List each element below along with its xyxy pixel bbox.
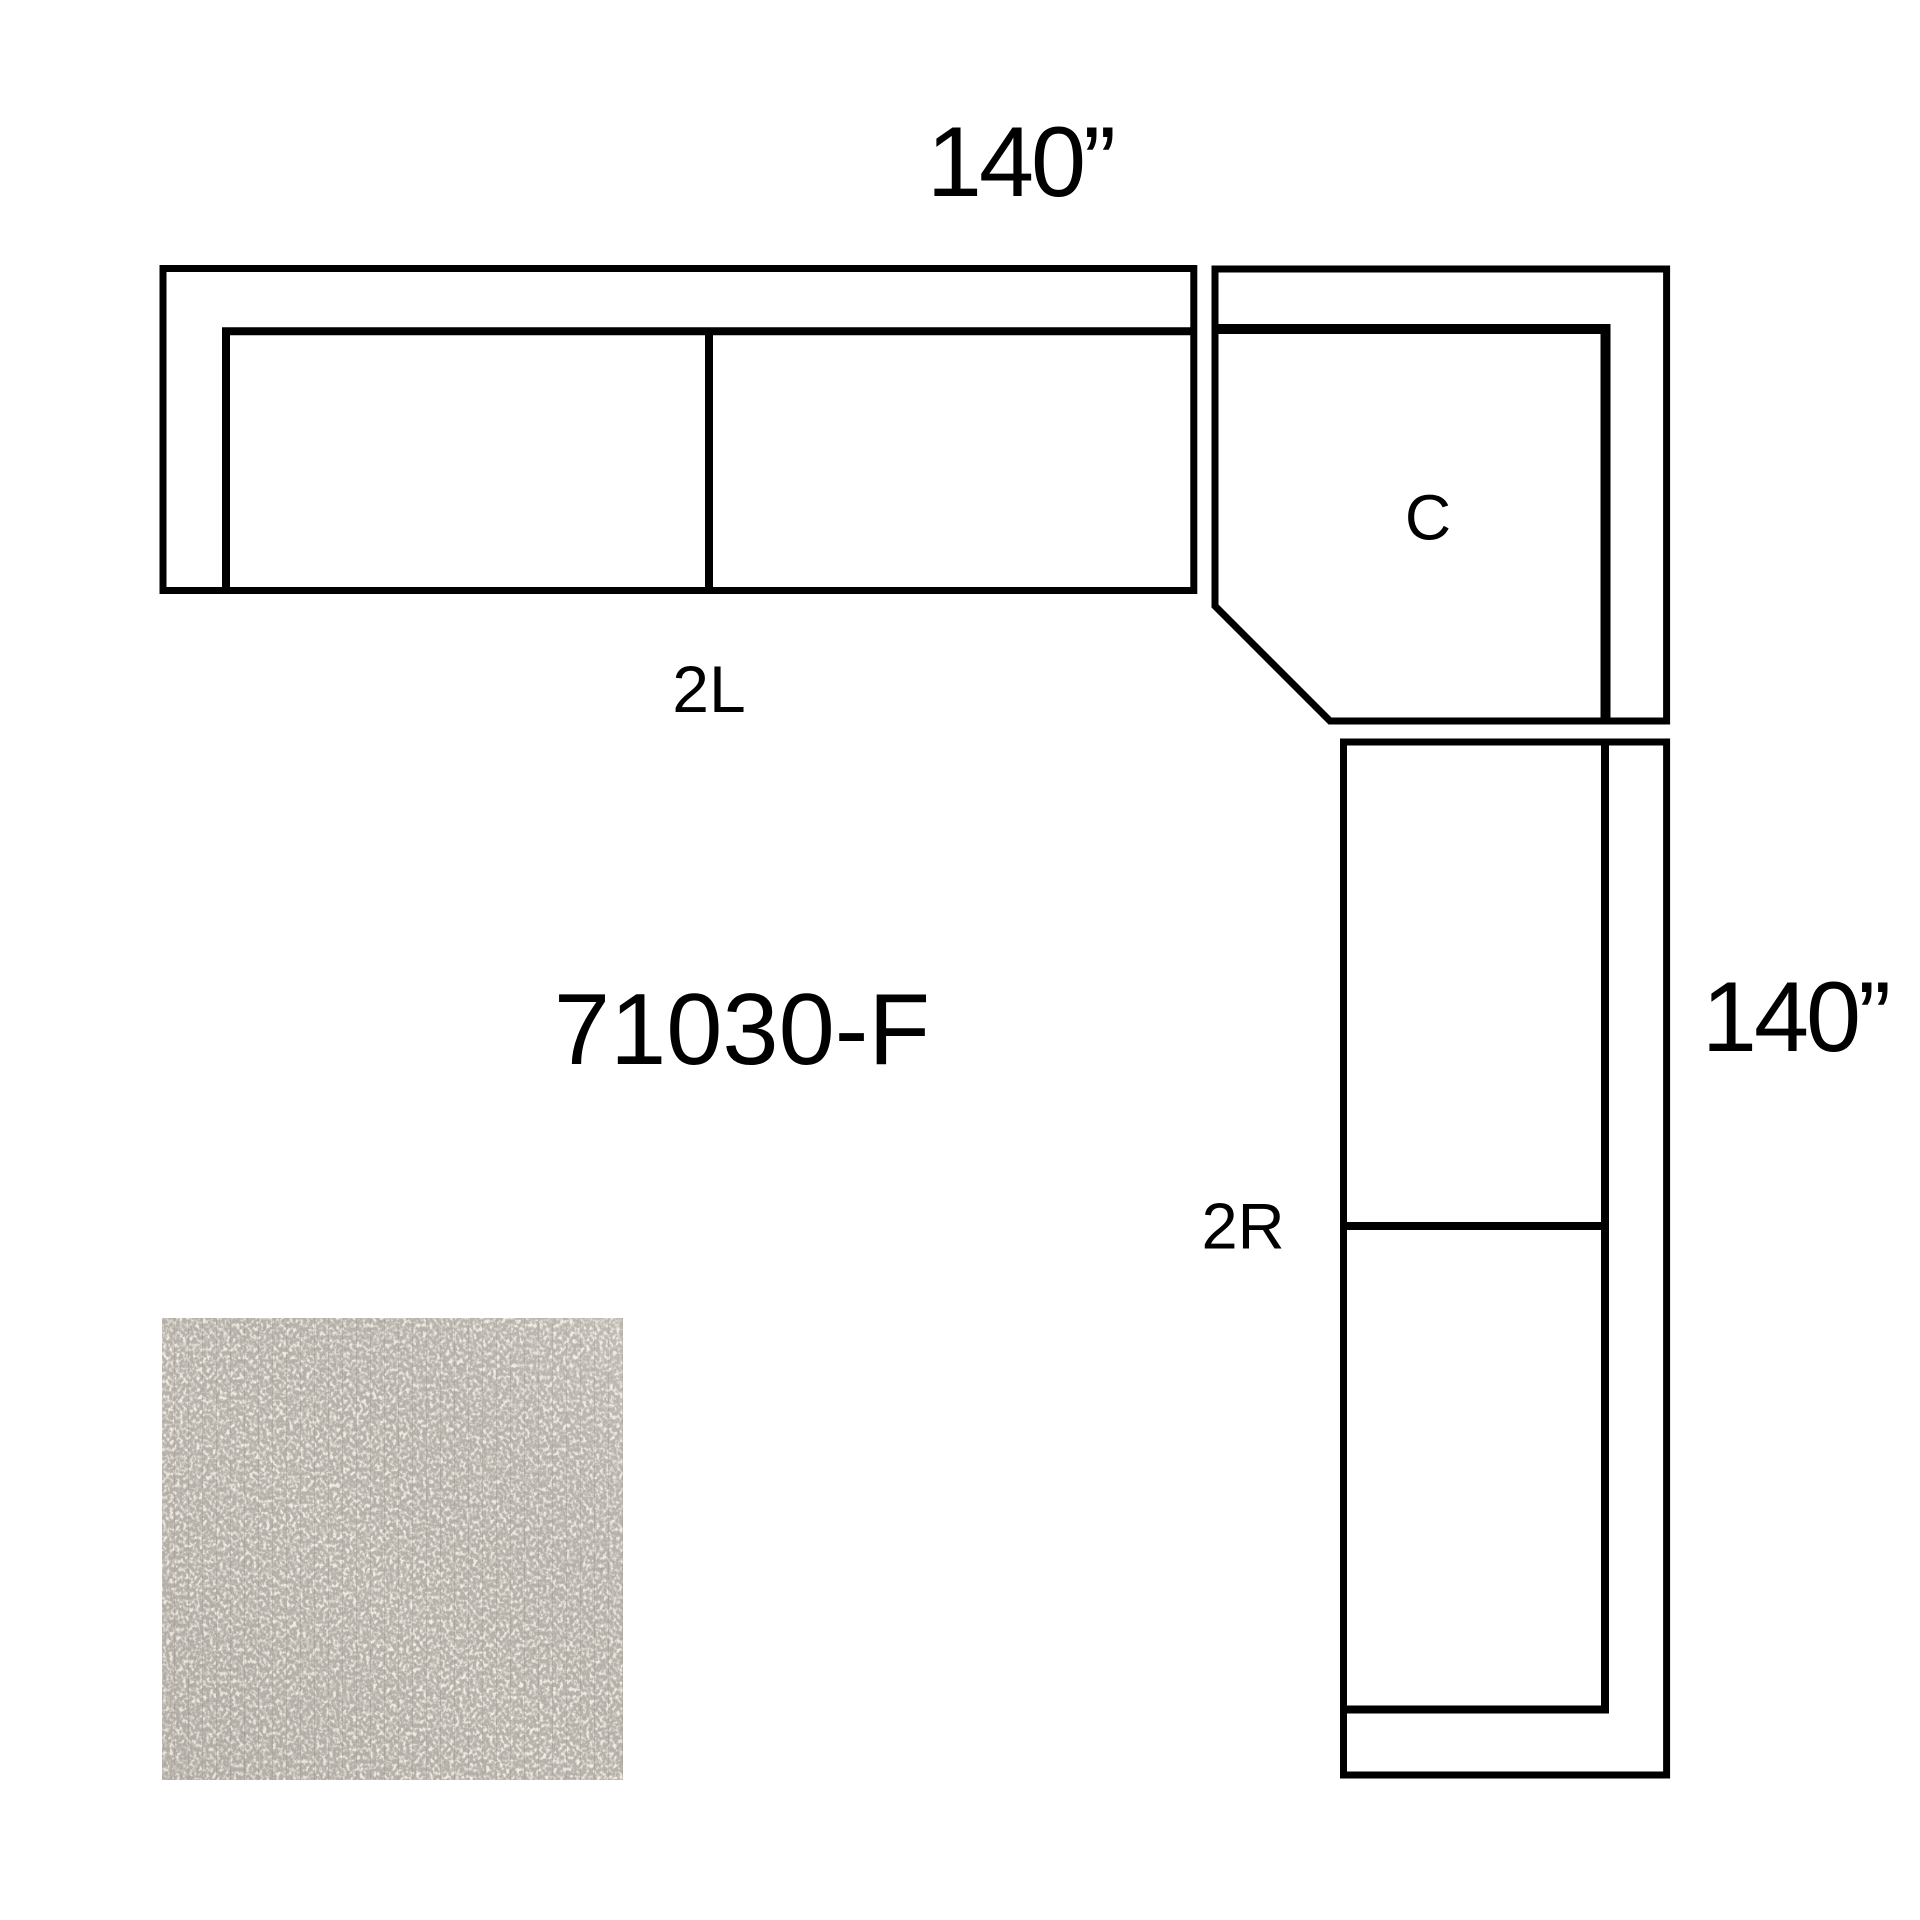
svg-text:C: C — [1405, 482, 1451, 554]
svg-text:140”: 140” — [1702, 961, 1888, 1072]
svg-text:140”: 140” — [927, 106, 1113, 217]
svg-text:71030-F: 71030-F — [554, 974, 930, 1086]
svg-text:2L: 2L — [672, 652, 745, 726]
svg-text:2R: 2R — [1201, 1190, 1284, 1263]
